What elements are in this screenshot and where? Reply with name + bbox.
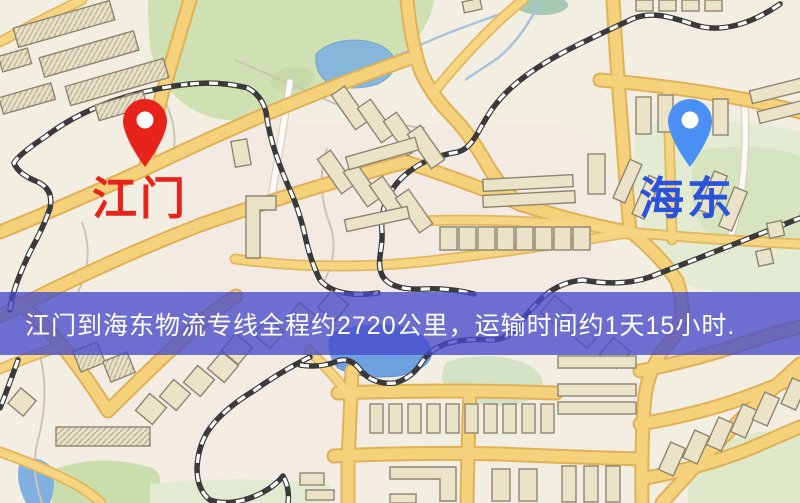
pin-hole <box>137 112 154 129</box>
destination-label: 海东 <box>639 173 735 224</box>
map-screenshot: 江门 海东 江门到海东物流专线全程约2720公里，运输时间约1天15小时. <box>0 0 800 503</box>
route-info-text: 江门到海东物流专线全程约2720公里，运输时间约1天15小时. <box>25 306 735 342</box>
origin-label: 江门 <box>92 173 188 224</box>
pin-hole <box>682 112 699 129</box>
map-canvas[interactable]: 江门 海东 <box>0 0 800 503</box>
route-info-banner: 江门到海东物流专线全程约2720公里，运输时间约1天15小时. <box>0 292 800 355</box>
